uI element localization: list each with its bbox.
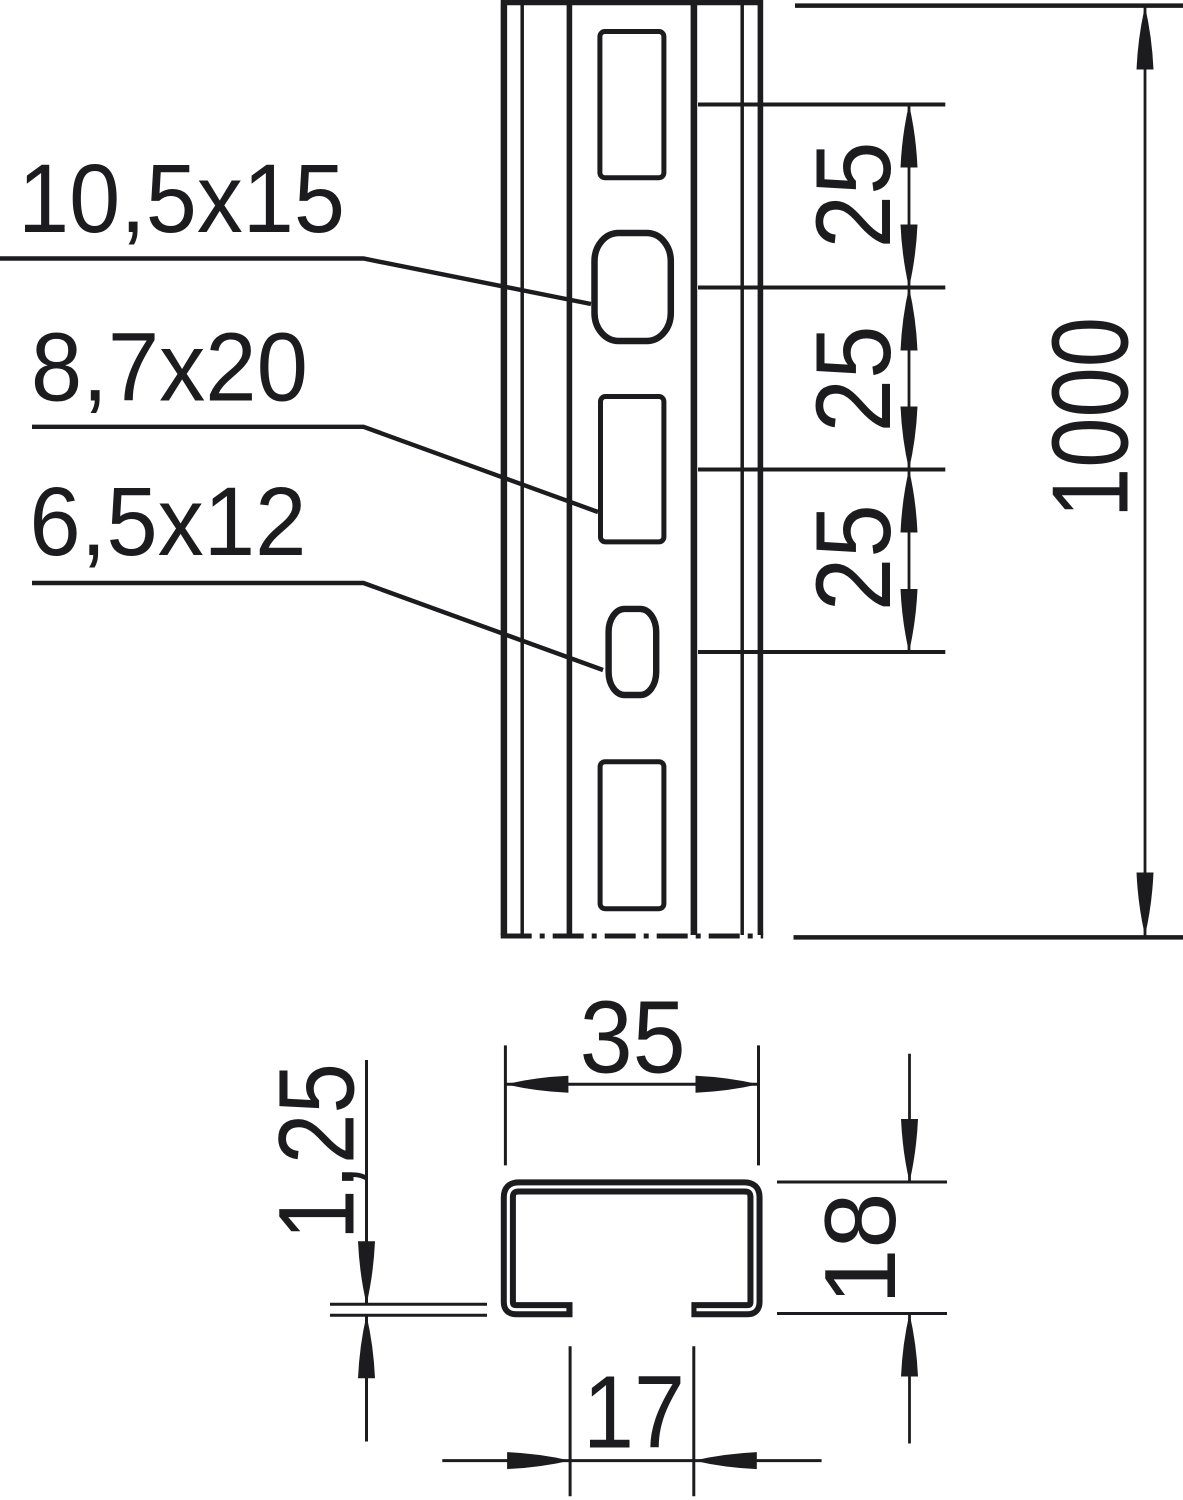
svg-text:25: 25 bbox=[793, 142, 913, 249]
svg-text:6,5x12: 6,5x12 bbox=[29, 467, 306, 576]
svg-text:10,5x15: 10,5x15 bbox=[18, 144, 345, 253]
svg-text:1,25: 1,25 bbox=[256, 1063, 377, 1240]
svg-text:8,7x20: 8,7x20 bbox=[31, 312, 308, 421]
svg-text:17: 17 bbox=[583, 1355, 685, 1470]
svg-text:18: 18 bbox=[805, 1192, 917, 1304]
svg-text:35: 35 bbox=[580, 980, 686, 1095]
svg-text:1000: 1000 bbox=[1030, 317, 1152, 518]
svg-text:25: 25 bbox=[793, 326, 913, 433]
svg-text:25: 25 bbox=[793, 504, 913, 611]
